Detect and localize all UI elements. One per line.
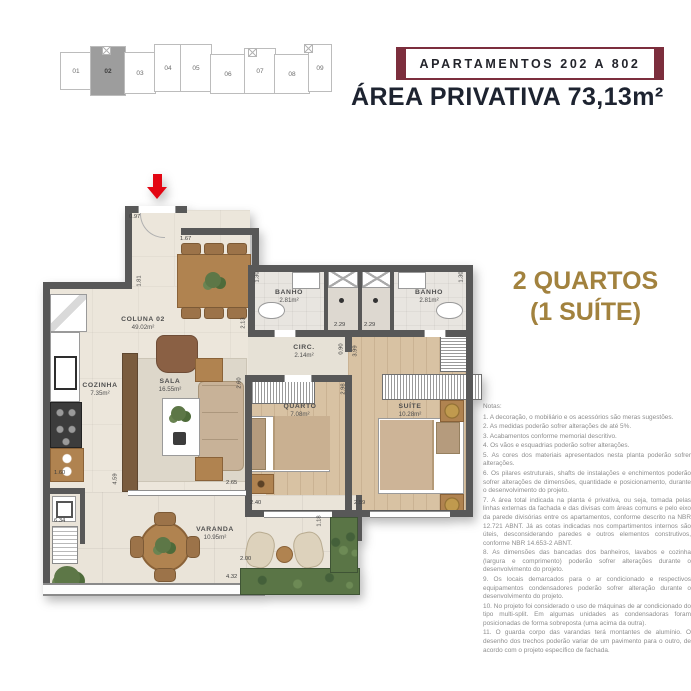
banho1-toilet bbox=[258, 302, 285, 319]
dim-label: 2.59 bbox=[354, 500, 365, 506]
fridge bbox=[50, 294, 87, 332]
room-label-sala: SALA16.55m² bbox=[159, 378, 182, 393]
banho1-door bbox=[274, 330, 296, 337]
building-keyplan: 01 02 03 04 05 06 07 08 09 bbox=[60, 40, 332, 100]
notes-title: Notas: bbox=[483, 403, 691, 412]
kitchen-cabinet bbox=[50, 448, 84, 482]
bedrooms-summary: 2 QUARTOS (1 SUÍTE) bbox=[480, 266, 691, 327]
dining-chair bbox=[204, 307, 224, 319]
dim-label: 2.29 bbox=[364, 322, 375, 328]
entry-arrow-head-icon bbox=[147, 187, 167, 199]
dim-label: 2.60 bbox=[237, 377, 243, 388]
room-label-suite: SUÍTE10.28m² bbox=[398, 403, 421, 418]
private-area-title: ÁREA PRIVATIVA 73,13m² bbox=[351, 83, 691, 112]
room-label-cozinha: COZINHA7.35m² bbox=[82, 382, 117, 397]
suite-pillow bbox=[436, 422, 460, 454]
dim-label: 2.40 bbox=[250, 500, 261, 506]
armchair bbox=[156, 335, 198, 373]
shower-drain-icon bbox=[373, 298, 378, 303]
room-label-banho2: BANHO2.81m² bbox=[415, 289, 443, 304]
dim-label: 2.00 bbox=[240, 556, 251, 562]
dim-label: 4.32 bbox=[226, 574, 237, 580]
keyplan-shaft-icon bbox=[304, 44, 313, 53]
keyplan-unit-06: 06 bbox=[210, 54, 246, 94]
tv-panel bbox=[122, 353, 138, 492]
room-label-varanda: VARANDA10.95m² bbox=[196, 526, 234, 541]
floor-plan: COLUNA 0249.02m² COZINHA7.35m² SALA16.55… bbox=[28, 170, 483, 618]
dim-label: 0.90 bbox=[339, 343, 345, 354]
banho1-sink bbox=[292, 272, 320, 289]
keyplan-shaft-icon bbox=[248, 48, 257, 57]
suite-nightstand-lamp bbox=[440, 400, 464, 422]
note-item: 7. A área total indicada na planta é pri… bbox=[483, 497, 691, 548]
note-item: 2. As medidas poderão sofrer alterações … bbox=[483, 423, 691, 432]
room-label-coluna: COLUNA 0249.02m² bbox=[121, 316, 165, 331]
lounge-side-table bbox=[276, 546, 293, 563]
suite-blanket bbox=[380, 420, 434, 490]
varanda-rail bbox=[43, 583, 265, 596]
summary-line2: (1 SUÍTE) bbox=[480, 297, 691, 328]
keyplan-unit-03: 03 bbox=[124, 52, 156, 94]
note-item: 11. O guarda corpo das varandas terá mon… bbox=[483, 629, 691, 655]
quarto-blanket bbox=[273, 416, 330, 470]
room-label-banho1: BANHO2.81m² bbox=[275, 289, 303, 304]
dim-label: 2.13 bbox=[241, 317, 247, 328]
badge-right-cap bbox=[654, 49, 662, 78]
wall-segment bbox=[345, 332, 352, 352]
wall-segment bbox=[80, 492, 85, 544]
wall-segment bbox=[43, 282, 50, 592]
note-item: 8. As dimensões das bancadas dos banheir… bbox=[483, 549, 691, 575]
dim-label: 4.59 bbox=[113, 473, 119, 484]
keyplan-unit-04: 04 bbox=[154, 44, 182, 92]
coffee-table-plant-icon bbox=[171, 406, 186, 421]
laundry-sink-bowl bbox=[56, 501, 73, 518]
wall-segment bbox=[358, 269, 362, 331]
table-plant-icon bbox=[205, 272, 221, 288]
badge-label: APARTAMENTOS 202 A 802 bbox=[406, 49, 654, 78]
dining-chair bbox=[227, 243, 247, 255]
summary-line1: 2 QUARTOS bbox=[480, 266, 691, 297]
note-item: 6. Os pilares estruturais, shafts de ins… bbox=[483, 470, 691, 496]
ac-condenser bbox=[52, 526, 78, 564]
badge-left-cap bbox=[398, 49, 406, 78]
varanda-sliding-door bbox=[128, 490, 246, 496]
suite-closet bbox=[440, 336, 468, 372]
wall-segment bbox=[345, 375, 352, 516]
dim-label: 3.99 bbox=[353, 345, 359, 356]
legal-notes: Notas: 1. A decoração, o mobiliário e os… bbox=[483, 403, 691, 656]
banho2-toilet bbox=[436, 302, 463, 319]
dining-chair bbox=[181, 307, 201, 319]
wall-segment bbox=[43, 488, 85, 494]
floorplan-sheet: 01 02 03 04 05 06 07 08 09 APARTAMENTOS … bbox=[0, 0, 691, 691]
varanda-chair bbox=[154, 568, 176, 582]
wall-segment bbox=[43, 282, 132, 289]
note-item: 9. Os locais demarcados para o ar condic… bbox=[483, 576, 691, 602]
wall-segment bbox=[181, 228, 259, 235]
dining-chair bbox=[204, 243, 224, 255]
room-label-circ: CIRC.2.14m² bbox=[293, 344, 315, 359]
quarto-door bbox=[284, 375, 312, 382]
wall-segment bbox=[245, 375, 252, 516]
dim-label: 1.30 bbox=[255, 271, 261, 282]
planter-side bbox=[330, 517, 358, 573]
dim-label: 2.65 bbox=[226, 480, 237, 486]
dim-label: 1.67 bbox=[180, 236, 191, 242]
suite-window bbox=[370, 511, 450, 518]
keyplan-shaft-icon bbox=[102, 46, 111, 55]
shower-drain-icon bbox=[339, 298, 344, 303]
entry-door bbox=[138, 206, 176, 213]
coffee-table-tray bbox=[173, 432, 186, 445]
note-item: 3. Acabamentos conforme memorial descrit… bbox=[483, 433, 691, 442]
dim-label: 1.60 bbox=[54, 470, 65, 476]
note-item: 5. As cores dos materiais apresentados n… bbox=[483, 452, 691, 469]
wall-segment bbox=[466, 265, 473, 516]
apartments-badge: APARTAMENTOS 202 A 802 bbox=[396, 47, 664, 80]
side-table bbox=[195, 358, 223, 382]
keyplan-unit-01: 01 bbox=[60, 52, 92, 90]
note-item: 10. No projeto foi considerado o uso de … bbox=[483, 603, 691, 629]
dim-label: 0.97 bbox=[129, 214, 140, 220]
dim-label: 1.81 bbox=[137, 275, 143, 286]
varanda-chair bbox=[154, 512, 176, 526]
quarto-pillows bbox=[250, 418, 266, 470]
stove bbox=[50, 402, 82, 448]
wall-segment bbox=[324, 269, 328, 331]
banho2-door bbox=[424, 330, 446, 337]
varanda-table-plant-icon bbox=[155, 537, 171, 553]
banho2-sink bbox=[398, 272, 426, 289]
wall-segment bbox=[390, 269, 394, 331]
varanda-chair bbox=[130, 536, 144, 558]
entry-arrow-icon bbox=[153, 174, 162, 187]
dim-label: 2.98 bbox=[341, 383, 347, 394]
dim-label: 2.29 bbox=[334, 322, 345, 328]
note-item: 1. A decoração, o mobiliário e os acessó… bbox=[483, 414, 691, 423]
kitchen-sink bbox=[54, 356, 77, 390]
dim-label: 6.34 bbox=[54, 518, 65, 524]
sofa-cushions bbox=[202, 384, 238, 466]
keyplan-unit-08: 08 bbox=[274, 54, 310, 94]
side-table bbox=[195, 457, 223, 481]
dim-label: 1.30 bbox=[459, 271, 465, 282]
keyplan-unit-05: 05 bbox=[180, 44, 212, 92]
dim-label: 1.18 bbox=[317, 515, 323, 526]
dining-chair bbox=[181, 243, 201, 255]
room-label-quarto: QUARTO7.08m² bbox=[284, 403, 317, 418]
note-item: 4. Os vãos e esquadrias poderão sofrer a… bbox=[483, 442, 691, 451]
